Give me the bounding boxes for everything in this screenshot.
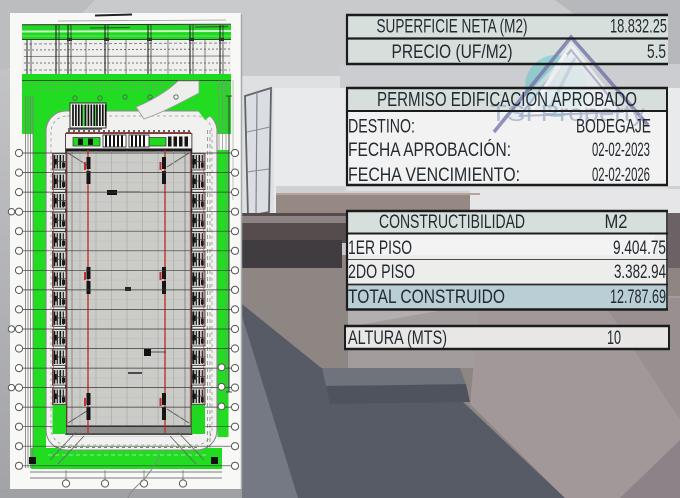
svg-text:02-02-2026: 02-02-2026 [592, 165, 650, 186]
svg-text:2DO PISO: 2DO PISO [348, 262, 415, 283]
svg-text:TOTAL CONSTRUIDO: TOTAL CONSTRUIDO [348, 287, 505, 308]
svg-text:CONSTRUCTIBILIDAD: CONSTRUCTIBILIDAD [379, 212, 525, 233]
svg-text:9.404.75: 9.404.75 [613, 238, 666, 259]
svg-text:PRECIO (UF/M2): PRECIO (UF/M2) [392, 42, 513, 63]
svg-text:FECHA APROBACIÓN:: FECHA APROBACIÓN: [348, 139, 511, 161]
svg-text:PERMISO EDIFICACIÓN APROBADO: PERMISO EDIFICACIÓN APROBADO [377, 88, 637, 111]
svg-text:SUPERFICIE NETA (M2): SUPERFICIE NETA (M2) [377, 17, 528, 38]
svg-text:1ER PISO: 1ER PISO [348, 238, 412, 259]
svg-text:BODEGAJE: BODEGAJE [576, 117, 651, 138]
svg-text:02-02-2023: 02-02-2023 [592, 140, 650, 161]
svg-text:5.5: 5.5 [647, 42, 666, 63]
svg-text:DESTINO:: DESTINO: [348, 117, 415, 138]
svg-text:FECHA VENCIMIENTO:: FECHA VENCIMIENTO: [348, 165, 520, 186]
svg-text:10: 10 [607, 328, 621, 349]
svg-text:18.832.25: 18.832.25 [610, 17, 667, 38]
svg-text:M2: M2 [605, 212, 628, 233]
svg-text:3.382.94: 3.382.94 [614, 262, 666, 283]
svg-text:ALTURA (MTS): ALTURA (MTS) [348, 328, 447, 349]
svg-text:12.787.69: 12.787.69 [610, 287, 666, 308]
